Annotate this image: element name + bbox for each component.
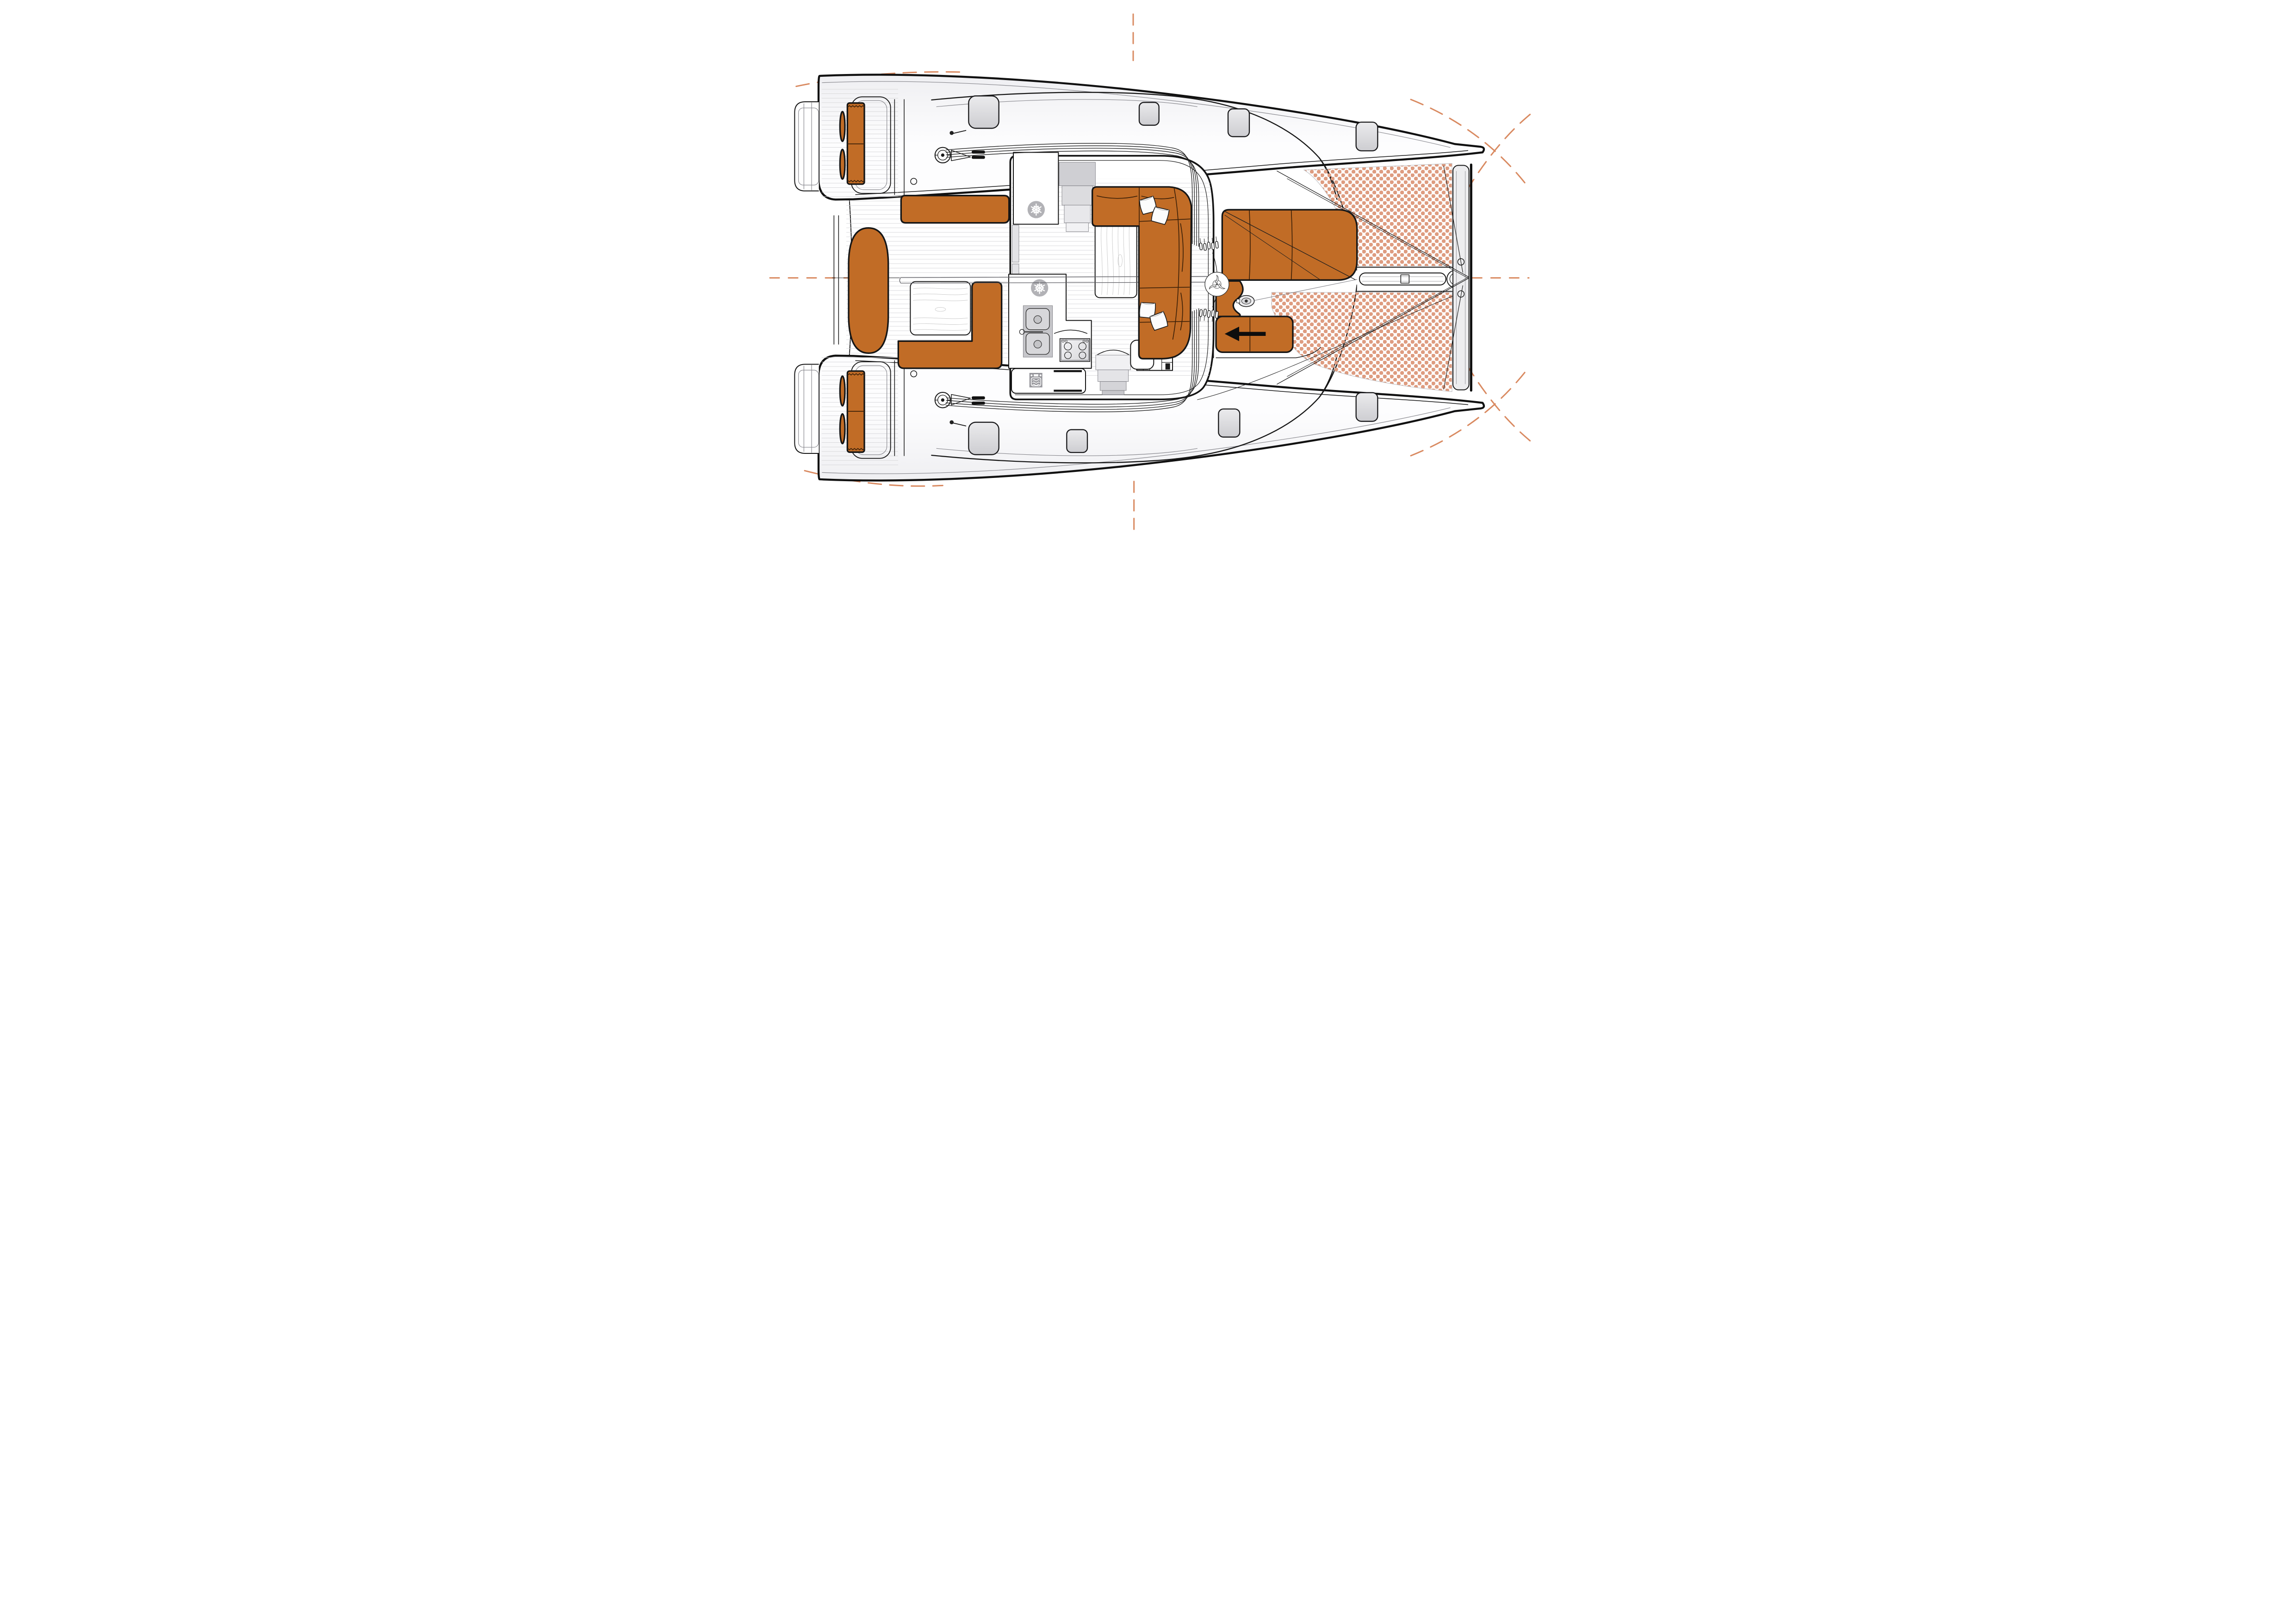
helm-backrest-cushion [840,149,845,179]
deck-hatch [1218,409,1240,437]
helm-backrest-cushion [840,414,845,444]
deck-hatch [968,422,999,455]
snowflake-icon [1028,201,1045,218]
galley-oven [1011,369,1086,393]
cockpit-bench-aft [901,196,1009,223]
cockpit-table [910,282,970,335]
transom-port [794,102,819,191]
forward-cockpit-bench [1216,316,1293,352]
deck-hatch [1139,102,1159,125]
cockpit-lounge-pad [849,228,888,353]
deck-hatch [1228,109,1249,136]
floorplan-stage: Catamaran deck and saloon layout, plan v… [765,0,1531,541]
catamaran-floorplan: Catamaran deck and saloon layout, plan v… [765,0,1531,541]
helm-backrest-cushion [840,112,845,141]
deck-hatch [1067,430,1087,452]
saloon-table [1095,223,1137,298]
deck-hatch [1356,393,1378,421]
companionway-port [1059,162,1095,232]
deck-hatch [968,96,999,128]
trampoline-starboard [1272,292,1452,392]
mast-icon [1205,272,1229,296]
oven-icon [1030,373,1043,387]
transom-starboard [794,364,819,453]
companionway-starboard [1096,350,1130,395]
snowflake-icon [1031,279,1048,297]
deck-hatch [1356,122,1378,151]
helm-backrest-cushion [840,376,845,406]
galley-stove [1060,339,1090,361]
galley-sink [1019,306,1052,357]
